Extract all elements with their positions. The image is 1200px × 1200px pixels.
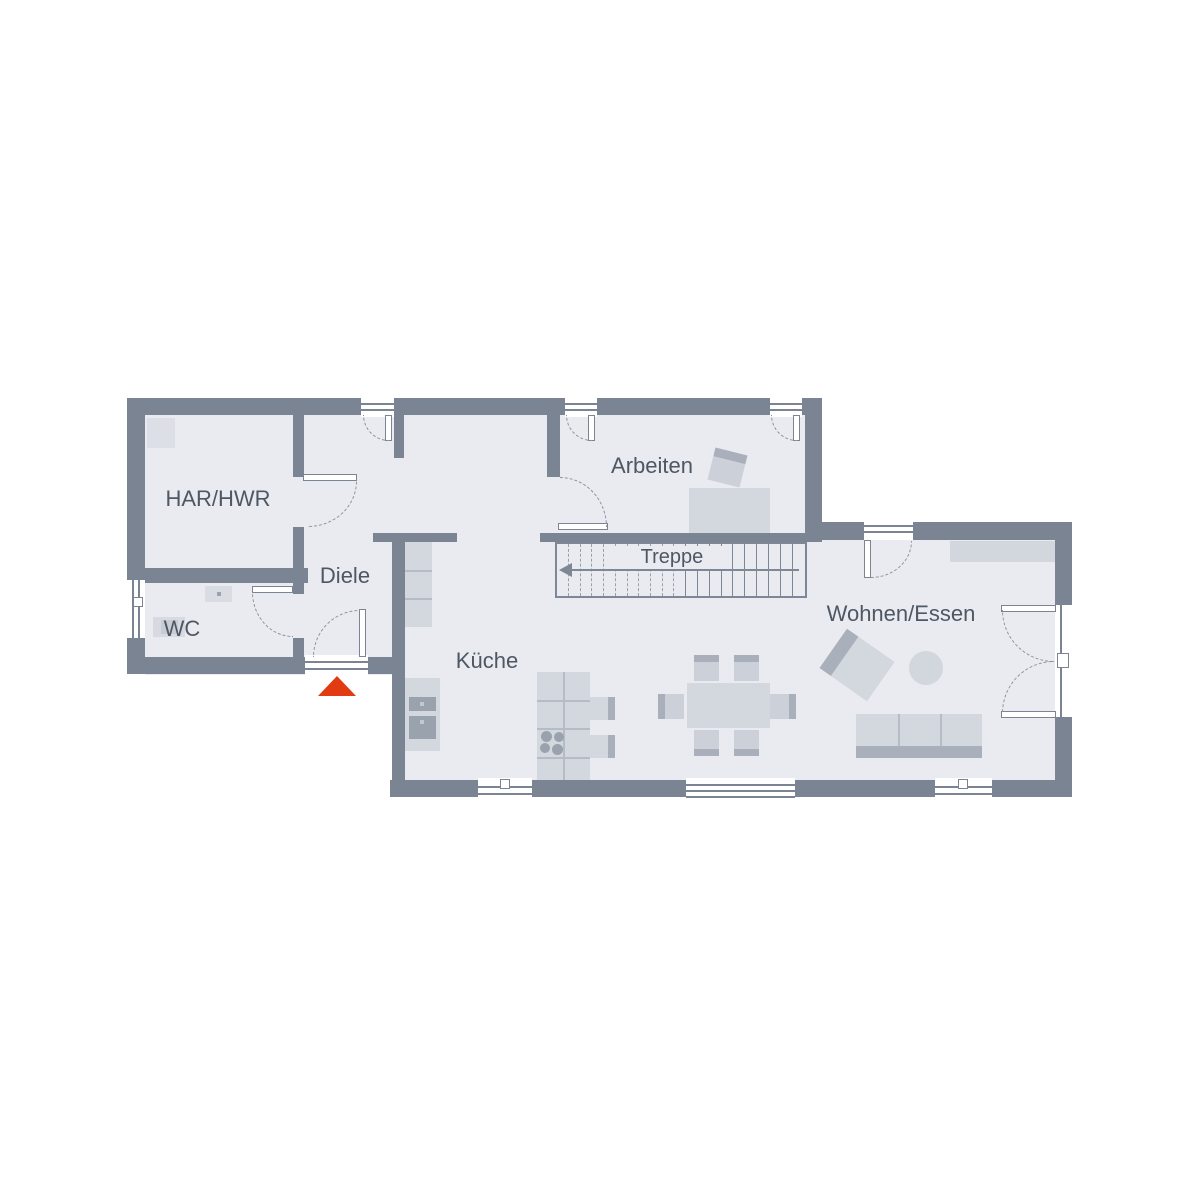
sofa — [856, 714, 982, 758]
window-handle — [958, 779, 968, 789]
exterior-wall — [822, 522, 864, 540]
stair-arrow-head — [559, 563, 572, 577]
exterior-wall — [795, 780, 935, 797]
sliding-window — [686, 778, 795, 802]
exterior-wall — [127, 398, 361, 415]
interior-wall — [547, 415, 560, 477]
patio-door-leaf — [864, 540, 871, 578]
interior-wall — [394, 415, 404, 458]
door-leaf — [303, 474, 357, 481]
desk — [689, 488, 770, 534]
exterior-wall — [913, 522, 1072, 540]
dining-chair — [734, 655, 759, 681]
exterior-wall — [805, 398, 822, 540]
room-label-wc: WC — [147, 616, 217, 642]
interior-wall — [293, 583, 304, 594]
cooktop-burner — [552, 744, 563, 755]
stair-arrow-line — [571, 569, 799, 571]
wc-window-handle — [133, 597, 143, 607]
patio-door — [864, 520, 913, 540]
exterior-wall — [394, 398, 565, 415]
room-label-wohnen-essen: Wohnen/Essen — [811, 601, 991, 627]
dining-chair — [770, 694, 796, 719]
bar-stool — [590, 697, 615, 720]
interior-wall — [293, 527, 304, 568]
cooktop-burner — [540, 743, 550, 753]
dining-chair — [734, 730, 759, 756]
interior-wall — [373, 533, 457, 542]
room-label-kueche: Küche — [427, 648, 547, 674]
sideboard — [950, 541, 1055, 562]
exterior-wall — [992, 780, 1072, 797]
kitchen-island — [537, 672, 590, 783]
dining-chair — [694, 730, 719, 756]
oven — [409, 716, 436, 739]
exterior-wall — [390, 780, 478, 797]
room-label-diele: Diele — [305, 563, 385, 589]
bar-stool — [590, 735, 615, 758]
window-handle — [500, 779, 510, 789]
exterior-wall — [392, 542, 405, 797]
side-table — [909, 651, 943, 685]
exterior-wall — [1055, 522, 1072, 607]
dining-table — [687, 683, 770, 728]
room-label-har-hwr: HAR/HWR — [138, 486, 298, 512]
interior-wall — [293, 638, 304, 674]
room-label-arbeiten: Arbeiten — [582, 453, 722, 479]
interior-wall — [540, 533, 822, 542]
hwr-appliance — [147, 418, 175, 448]
kitchen-appliance-column — [405, 678, 440, 751]
exterior-wall — [532, 780, 686, 797]
interior-wall — [293, 415, 304, 477]
dining-chair — [658, 694, 684, 719]
cooktop-burner — [541, 731, 552, 742]
entrance-door — [305, 655, 368, 675]
cooktop-burner — [554, 732, 564, 742]
wc-window — [127, 580, 145, 638]
wc-sink — [205, 586, 232, 602]
entrance-door-leaf — [359, 609, 366, 657]
exterior-wall — [127, 657, 308, 674]
kitchen-tall-cabinet — [405, 542, 432, 627]
floor-plan: HAR/HWR WC Diele Arbeiten Treppe Küche W… — [0, 0, 1200, 1200]
room-label-treppe: Treppe — [612, 546, 732, 569]
exterior-wall — [597, 398, 770, 415]
microwave — [409, 697, 436, 711]
french-door-handle — [1057, 653, 1069, 668]
interior-wall — [127, 568, 308, 583]
dining-chair — [694, 655, 719, 681]
entrance-arrow-icon — [318, 676, 356, 696]
